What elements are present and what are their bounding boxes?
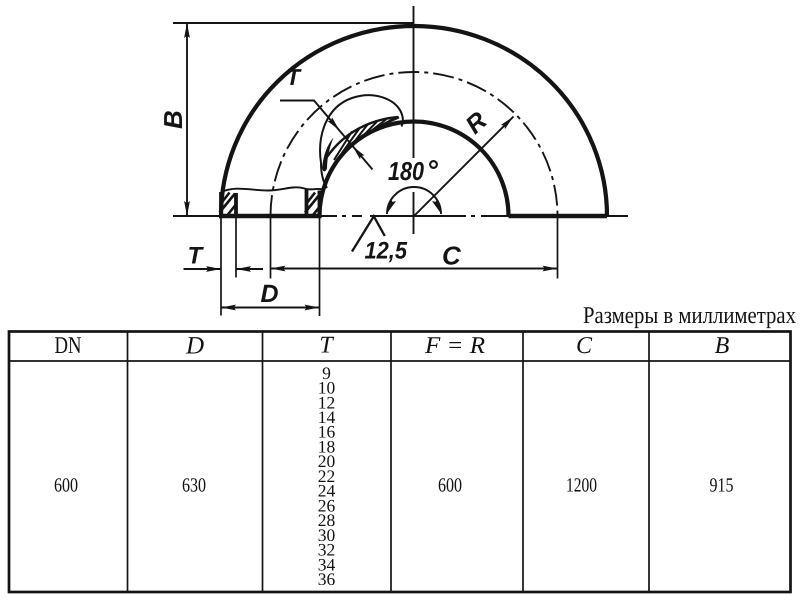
svg-text:C: C <box>442 241 462 271</box>
svg-text:1200: 1200 <box>566 475 597 497</box>
svg-text:C: C <box>576 333 593 359</box>
svg-text:T: T <box>188 243 205 270</box>
svg-text:180: 180 <box>388 156 424 186</box>
svg-text:600: 600 <box>438 475 462 497</box>
svg-text:600: 600 <box>54 475 78 497</box>
svg-text:D: D <box>261 280 279 308</box>
svg-text:T: T <box>286 64 302 90</box>
svg-text:630: 630 <box>182 475 206 497</box>
svg-text:DN: DN <box>55 333 82 359</box>
svg-text:Размеры в миллиметрах: Размеры в миллиметрах <box>583 303 796 329</box>
svg-text:B: B <box>715 333 730 359</box>
svg-text:F = R: F = R <box>424 333 485 359</box>
svg-text:D: D <box>185 333 204 360</box>
svg-text:36: 36 <box>318 569 336 589</box>
svg-text:915: 915 <box>710 475 734 497</box>
svg-text:B: B <box>158 110 188 129</box>
svg-text:T: T <box>319 333 334 359</box>
svg-text:12,5: 12,5 <box>365 238 408 265</box>
